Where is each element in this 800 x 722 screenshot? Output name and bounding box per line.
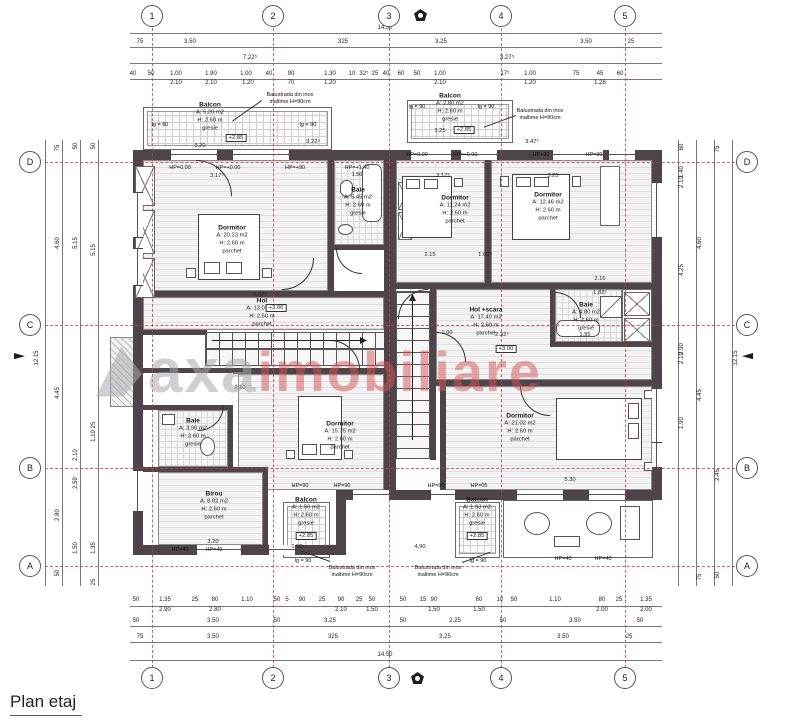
room-name: Dormitor <box>504 412 535 420</box>
room-detail: A: 21.02 m2 <box>504 421 535 429</box>
room-label-dormitor: DormitorA: 21.02 m2H: 2.60 mparchet <box>504 412 535 443</box>
dimension-label: 7.22⁵ <box>243 55 257 61</box>
dimension-label: 2.10 <box>679 352 685 364</box>
window <box>430 490 456 500</box>
dimension-line <box>130 660 662 661</box>
shaft-x-box <box>624 292 650 316</box>
wall <box>430 289 436 460</box>
dimension-label: 50 <box>400 618 407 624</box>
grid-axis-line-2 <box>273 28 274 668</box>
room-detail: parchet <box>469 330 502 338</box>
railing-height-label: lg = 90 <box>295 558 312 564</box>
dimension-label: 75 <box>697 574 703 581</box>
room-detail: parchet <box>216 248 247 256</box>
annotation-line: inaltime H=90cm <box>267 99 314 106</box>
wall <box>263 467 268 545</box>
furniture-block <box>186 268 196 278</box>
room-detail: H: 2.60 m <box>572 317 600 325</box>
dimension-label: 2.10 <box>170 80 182 86</box>
north-arrow-icon <box>414 9 427 21</box>
room-label-hol: HolA: 13.03 m2H: 2.50 mparchet <box>246 297 277 328</box>
furniture-block <box>454 178 463 187</box>
dimension-label: 50 <box>400 597 407 603</box>
dimension-label: 1.20 <box>524 80 536 86</box>
room-label-baie: BaieA: 4.80 m2H: 2.60 mgresie <box>572 301 600 332</box>
room-name: Baie <box>179 417 207 425</box>
dimension-label: 75 <box>573 71 580 77</box>
dimension-label: 1.50 <box>291 544 302 550</box>
parapet-height-label: HP=90 <box>428 483 445 489</box>
pillow <box>204 262 220 274</box>
dimension-label: 50 <box>73 143 79 150</box>
grid-axis-line-5 <box>625 28 626 668</box>
level-marker: +2.85 <box>467 532 488 540</box>
room-detail: A: 15.75 m2 <box>324 429 355 437</box>
annotation-line: Balustrada din inox <box>267 92 314 99</box>
room-label-birou: BirouA: 8.02 m2H: 2.60 mparchet <box>200 490 228 521</box>
grid-bubble-top-1: 1 <box>141 5 163 27</box>
room-label-dormitor: DormitorA: 20.23 m2H: 2.60 mparchet <box>216 224 247 255</box>
pillow <box>424 179 438 189</box>
dimension-label: 4.60 <box>697 237 703 249</box>
dimension-label: 50 <box>91 143 97 150</box>
grid-bubble-left-A: A <box>19 555 41 577</box>
dimension-label: 75 <box>137 634 144 640</box>
dimension-line <box>130 63 662 64</box>
dimension-label: 50 <box>133 618 140 624</box>
dimension-label: 3.25 <box>434 128 445 134</box>
balcony-label: BalconA: 2.80 m2H: 2.60 mgresie <box>436 92 464 123</box>
dimension-label: 3.27⁵ <box>500 55 514 61</box>
dimension-label: 3.17⁵ <box>436 173 450 179</box>
dimension-label: 1.00 <box>170 71 182 77</box>
dimension-label: 25 <box>319 597 326 603</box>
dimension-label: 12.15 <box>733 350 739 365</box>
wall <box>336 500 346 555</box>
dimension-label: 25 <box>192 597 199 603</box>
dimension-label: 32⁵ <box>359 71 368 77</box>
dimension-label: 1.30 <box>324 71 336 77</box>
railing-height-label: lg = 90 <box>470 558 487 564</box>
level-marker: +3.00 <box>266 304 287 312</box>
dimension-label: 50 <box>369 597 376 603</box>
annotation-line: inaltime H=90cm <box>329 572 376 579</box>
dimension-label: 1.02⁵ <box>478 252 492 258</box>
dimension-label: 5.15 <box>91 244 97 256</box>
dimension-label: 25 <box>356 597 363 603</box>
dimension-label: 4.45 <box>697 389 703 401</box>
dimension-label: 3.25 <box>547 173 558 179</box>
dimension-label: 1.35 <box>640 597 652 603</box>
room-name: Baie <box>344 186 372 194</box>
stair-direction-arrow <box>412 300 413 440</box>
dimension-label: 50 <box>511 597 518 603</box>
dimension-label: 3.22⁵ <box>306 139 320 145</box>
dimension-label: 2.10 <box>434 80 446 86</box>
grid-bubble-bottom-1: 1 <box>141 667 163 689</box>
dimension-line <box>130 33 662 34</box>
furniture-block <box>620 506 640 540</box>
dimension-label: 1.00 <box>434 71 446 77</box>
dimension-label: 2.10 <box>679 176 685 188</box>
grid-axis-line-B <box>45 468 735 469</box>
room-name: Baie <box>572 301 600 309</box>
room-detail: A: 20.23 m2 <box>216 233 247 241</box>
parapet-height-label: HP+90 <box>533 152 550 158</box>
dimension-label: 50 <box>133 597 140 603</box>
room-detail: H: 2.60 m <box>463 512 491 520</box>
wall <box>440 386 446 490</box>
room-label-dormitor: DormitorA: 15.75 m2H: 2.60 mparchet <box>324 420 355 451</box>
balcony-label: BalconA: 1.93 m2H: 2.60 mgresie <box>463 496 491 527</box>
grid-bubble-right-A: A <box>736 555 758 577</box>
room-detail: A: 3.90 m2 <box>179 426 207 434</box>
grid-bubble-right-B: B <box>736 457 758 479</box>
railing-annotation: Balustrada din inoxinaltime H=90cm <box>267 92 314 106</box>
room-detail: A: 1.50 m2 <box>292 505 320 513</box>
shower <box>600 296 622 318</box>
room-detail: parchet <box>324 444 355 452</box>
dimension-line <box>714 140 715 586</box>
dimension-label: 3.50 <box>184 39 196 45</box>
dimension-label: 60 <box>476 597 483 603</box>
dimension-label: 1.20 <box>242 80 254 86</box>
grid-bubble-top-5: 5 <box>614 5 636 27</box>
wall <box>550 342 652 347</box>
room-name: Birou <box>200 490 228 498</box>
floor-plan-sheet: axa imobiliare Plan etaj 1122334455DDCCB… <box>0 0 800 722</box>
dimension-label: 3.47⁵ <box>525 139 539 145</box>
section-marker-icon <box>14 353 25 362</box>
grid-bubble-bottom-2: 2 <box>262 667 284 689</box>
dimension-label: 50 <box>274 618 281 624</box>
room-detail: A: 5.20 m2 <box>196 110 224 118</box>
parapet-height-label: HP=+0.00 <box>453 152 478 158</box>
dimension-label: 50 <box>637 618 644 624</box>
dimension-label: 3.25 <box>324 618 336 624</box>
room-detail: A: 11.24 m2 <box>440 203 471 211</box>
room-detail: parchet <box>532 215 563 223</box>
grid-bubble-bottom-4: 4 <box>490 667 512 689</box>
dimension-label: 2.10 <box>205 80 217 86</box>
window <box>133 192 143 238</box>
parapet-height-label: HP=05 <box>471 483 488 489</box>
room-label-dormitor: DormitorA: 11.24 m2H: 2.60 mparchet <box>440 194 471 225</box>
dimension-label: 3.50 <box>207 618 219 624</box>
dimension-label: 50 <box>500 618 507 624</box>
dimension-line <box>130 626 662 627</box>
grid-bubble-right-C: C <box>736 314 758 336</box>
furniture-block <box>286 450 295 459</box>
room-detail: H: 2.60 m <box>344 202 372 210</box>
dimension-label: 3.25 <box>435 39 447 45</box>
balcony-label: BalconA: 1.50 m2H: 2.60 mgresie <box>292 496 320 527</box>
room-detail: H: 2.50 m <box>246 313 277 321</box>
parapet-height-label: HP=+0.00 <box>216 165 241 171</box>
room-detail: A: 1.93 m2 <box>463 505 491 513</box>
parapet-height-label: 1.50 <box>352 172 363 178</box>
room-detail: H: 2.60 m <box>196 117 224 125</box>
room-detail: parchet <box>246 321 277 329</box>
dimension-label: 1.50 <box>428 607 440 613</box>
dimension-label: 2.16 <box>594 276 605 282</box>
room-name: Dormitor <box>216 224 247 232</box>
room-label-dormitor: DormitorA: 12.46 m2H: 2.60 mparchet <box>532 191 563 222</box>
wall <box>228 405 233 467</box>
dimension-label: 1.00 <box>524 71 536 77</box>
railing-height-label: lg = 90 <box>409 104 426 110</box>
window <box>133 470 143 512</box>
dimension-label: 4.25 <box>679 264 685 276</box>
dimension-label: 1.35 <box>91 542 97 554</box>
parapet-height-label: HP=0.00 <box>169 165 191 171</box>
room-detail: A: 8.02 m2 <box>200 499 228 507</box>
grid-bubble-top-2: 2 <box>262 5 284 27</box>
furniture-block <box>162 414 175 425</box>
dimension-label: 1.90 <box>679 417 685 429</box>
grid-bubble-right-D: D <box>736 151 758 173</box>
room-detail: H: 2.60 m <box>292 512 320 520</box>
dimension-label: 3.50 <box>557 634 569 640</box>
dimension-label: 4.90 <box>414 544 425 550</box>
pillow <box>628 403 639 419</box>
dimension-label: 2.00 <box>596 607 608 613</box>
room-label-hol-scara: Hol +scaraA: 17.40 m2H: 2.60 mparchet <box>469 306 502 337</box>
dimension-label: 1.10 <box>241 597 253 603</box>
dimension-label: 4.45 <box>55 387 61 399</box>
room-detail: H: 2.60 m <box>504 428 535 436</box>
wall <box>233 368 384 374</box>
window <box>170 150 218 160</box>
dimension-label: 90 <box>431 597 438 603</box>
window <box>652 388 662 446</box>
grid-bubble-bottom-3: 3 <box>378 667 400 689</box>
parapet-height-label: HP=0.00 <box>406 152 428 158</box>
room-name: Balcon <box>463 496 491 504</box>
dimension-label: 1.90 <box>205 71 217 77</box>
annotation-line: Balustrada din inox <box>415 565 462 572</box>
dimension-label: 1.00 <box>240 71 252 77</box>
dimension-label: 3.50 <box>207 634 219 640</box>
dimension-label: 60 <box>398 71 405 77</box>
dimension-line <box>80 140 81 586</box>
room-detail: gresie <box>344 210 372 218</box>
room-label-baie: BaieA: 3.90 m2H: 2.60 mgresie <box>179 417 207 448</box>
dimension-label: 2.45 <box>715 469 721 481</box>
dimension-line <box>696 140 697 586</box>
dimension-label: 325 <box>328 634 338 640</box>
room-name: Balcon <box>436 92 464 100</box>
window <box>352 490 390 500</box>
dimension-label: 75 <box>55 145 61 152</box>
annotation-line: Balustrada din inox <box>329 565 376 572</box>
dimension-label: 2.10 <box>73 449 79 461</box>
dimension-label: 25 <box>628 39 635 45</box>
annotation-line: Balustrada din inox <box>517 108 564 115</box>
dimension-label: 3.20 <box>207 539 218 545</box>
dimension-label: 75 <box>137 39 144 45</box>
dimension-label: 40 <box>266 71 273 77</box>
dimension-label: 1.10 <box>549 597 561 603</box>
dimension-label: 2.15 <box>424 252 435 258</box>
pillow <box>516 177 531 187</box>
window <box>588 490 626 500</box>
dimension-label: 2.10 <box>234 385 245 391</box>
pillow <box>406 179 420 189</box>
railing-annotation: Balustrada din inoxinaltime H=90cm <box>517 108 564 122</box>
level-marker: +3.00 <box>496 345 517 353</box>
dimension-label: 25 <box>372 71 379 77</box>
window <box>652 442 662 468</box>
parapet-height-label: HP=40 <box>595 556 612 562</box>
dimension-label: 325 <box>338 39 348 45</box>
room-detail: gresie <box>179 441 207 449</box>
pillow <box>226 262 242 274</box>
closet <box>600 166 620 226</box>
dimension-label: 40 <box>130 71 137 77</box>
dimension-label: 40 <box>383 71 390 77</box>
railing-annotation: Balustrada din inoxinaltime H=90cm <box>329 565 376 579</box>
dimension-label: 80 <box>599 597 606 603</box>
dimension-label: 80 <box>212 597 219 603</box>
balcony-floor <box>143 107 332 150</box>
bath-fixture <box>586 512 612 535</box>
dimension-label: 3.20 <box>194 143 205 149</box>
dimension-label: 25 <box>616 597 623 603</box>
room-name: Hol +scara <box>469 306 502 314</box>
dimension-label: 45 <box>597 71 604 77</box>
railing-height-label: lg = 90 <box>478 104 495 110</box>
balcony-label: BalconA: 5.20 m2H: 2.60 mgresie <box>196 101 224 132</box>
grid-bubble-top-4: 4 <box>490 5 512 27</box>
room-detail: parchet <box>504 436 535 444</box>
dimension-label: 4.60 <box>55 237 61 249</box>
room-name: Dormitor <box>324 420 355 428</box>
grid-axis-line-3 <box>389 28 390 668</box>
room-name: Dormitor <box>532 191 563 199</box>
grid-bubble-bottom-5: 5 <box>614 667 636 689</box>
section-marker-icon <box>742 353 753 362</box>
grid-bubble-left-C: C <box>19 314 41 336</box>
dimension-label: 50 <box>274 597 281 603</box>
dimension-label: 5.15 <box>73 237 79 249</box>
level-marker: +2.85 <box>454 126 475 134</box>
dimension-label: 1.50 <box>73 542 79 554</box>
window <box>608 150 636 160</box>
parapet-height-label: HP=90 <box>586 152 603 158</box>
railing-height-label: lg = 90 <box>152 122 169 128</box>
dimension-label: 1.10 <box>91 430 97 442</box>
grid-axis-line-C <box>45 325 735 326</box>
window <box>133 248 143 286</box>
grid-bubble-left-B: B <box>19 457 41 479</box>
dimension-label: 2.25 <box>449 618 461 624</box>
dimension-label: 5 <box>285 597 288 603</box>
dimension-label: 1.50 <box>473 607 485 613</box>
parapet-height-label: HP=40 <box>172 547 189 553</box>
dimension-label: 5.30 <box>564 477 575 483</box>
room-label-baie: BaieA: 5.45 m2H: 2.60 mgresie <box>344 186 372 217</box>
grid-axis-line-D <box>45 162 735 163</box>
dimension-line <box>98 140 99 586</box>
window <box>516 490 564 500</box>
dimension-label: 90 <box>299 597 306 603</box>
room-detail: A: 12.46 m2 <box>532 200 563 208</box>
dimension-label: 25 <box>91 579 97 586</box>
dimension-label: 10 <box>497 597 504 603</box>
parapet-height-label: HP=90 <box>334 483 351 489</box>
room-detail: H: 2.60 m <box>469 322 502 330</box>
dimension-label: 10 <box>349 71 356 77</box>
dimension-label: 50 <box>414 71 421 77</box>
dimension-label: 75 <box>715 146 721 153</box>
dimension-label: 2.80 <box>209 607 221 613</box>
dimension-label: 2.59 <box>73 477 79 489</box>
dimension-label: 90 <box>288 71 295 77</box>
room-detail: gresie <box>436 116 464 124</box>
stair-direction-arrow <box>212 340 362 341</box>
dimension-label: 25 <box>626 634 633 640</box>
annotation-line: inaltime H=90cm <box>415 572 462 579</box>
room-detail: H: 2.60 m <box>436 108 464 116</box>
room-detail: parchet <box>440 218 471 226</box>
dimension-label: 1.20 <box>324 80 336 86</box>
north-arrow-icon <box>411 672 424 684</box>
dimension-label: 1.82⁵ <box>593 290 607 296</box>
room-detail: A: 4.80 m2 <box>572 310 600 318</box>
room-detail: gresie <box>572 325 600 333</box>
furniture-block <box>572 176 581 187</box>
window <box>232 150 290 160</box>
dimension-label: 50 <box>55 570 61 577</box>
dimension-label: 2.80 <box>55 509 61 521</box>
dimension-line <box>130 47 662 48</box>
shaft-x-box <box>624 318 650 342</box>
parapet-height-label: HP=90 <box>292 483 309 489</box>
parapet-height-label: HP=+90 <box>285 165 305 171</box>
room-detail: A: 17.40 m2 <box>469 315 502 323</box>
pillow <box>628 423 639 439</box>
room-detail: H: 2.60 m <box>440 210 471 218</box>
dimension-line <box>62 140 63 586</box>
room-detail: A: 2.80 m2 <box>436 101 464 109</box>
dimension-line <box>130 642 662 643</box>
room-detail: gresie <box>463 520 491 528</box>
railing-annotation: Balustrada din inoxinaltime H=90cm <box>415 565 462 579</box>
dimension-label: 90 <box>338 597 345 603</box>
furniture-block <box>554 536 580 547</box>
room-detail: parchet <box>200 514 228 522</box>
room-name: Balcon <box>196 101 224 109</box>
grid-bubble-top-3: 3 <box>378 5 400 27</box>
room-name: Dormitor <box>440 194 471 202</box>
dimension-label: 1.50 <box>366 607 378 613</box>
room-detail: gresie <box>292 520 320 528</box>
room-detail: H: 2.60 m <box>324 436 355 444</box>
wall <box>328 160 334 291</box>
dimension-label: 25 <box>91 422 97 429</box>
grid-axis-line-A <box>45 566 735 567</box>
dimension-label: 50 <box>148 71 155 77</box>
door-arc <box>336 248 362 274</box>
dimension-label: 1.28 <box>594 80 606 86</box>
dimension-label: 60 <box>617 71 624 77</box>
pillow <box>302 444 317 455</box>
room-detail: gresie <box>196 125 224 133</box>
dimension-label: 15 <box>420 597 427 603</box>
parapet-height-label: HP=40 <box>206 547 223 553</box>
dimension-label: 1.35 <box>159 597 171 603</box>
